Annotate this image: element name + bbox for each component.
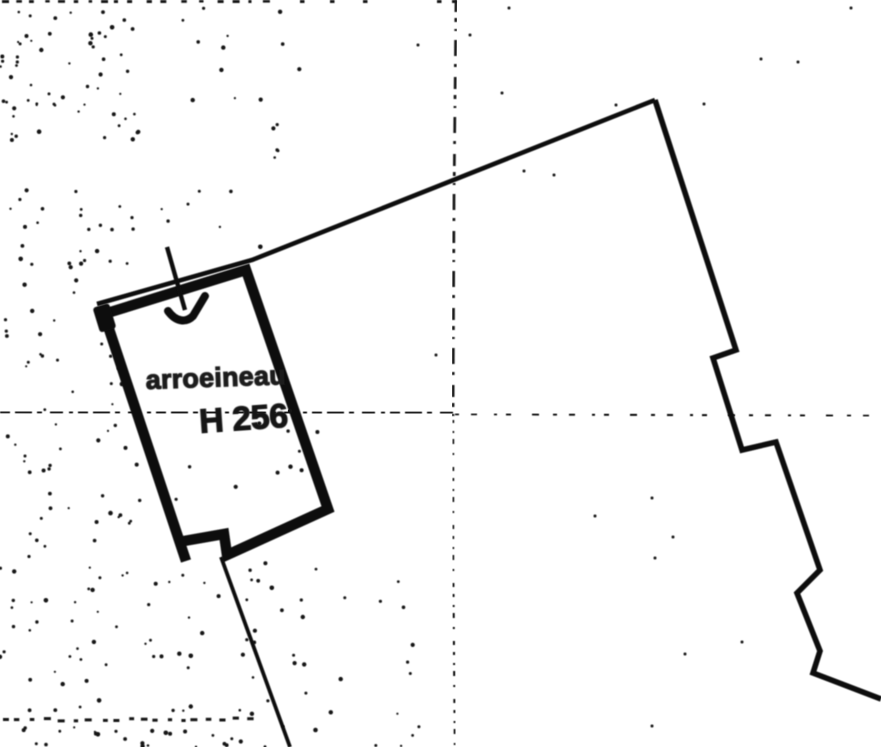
svg-text:arroeineau: arroeineau <box>145 360 286 395</box>
svg-text:H 256: H 256 <box>198 397 289 441</box>
